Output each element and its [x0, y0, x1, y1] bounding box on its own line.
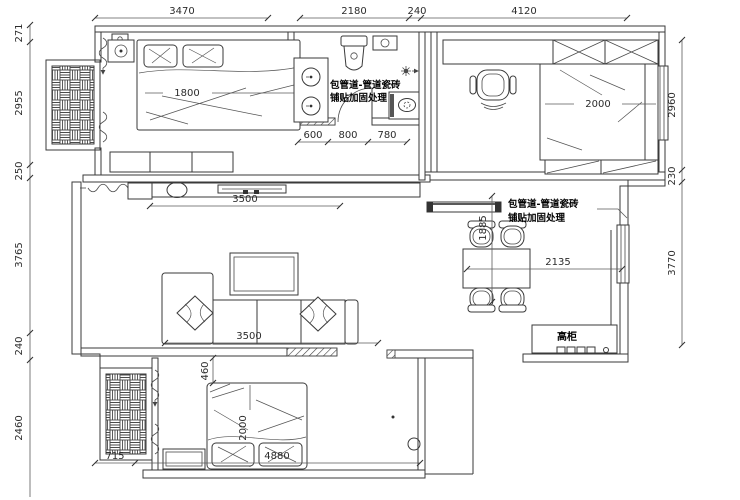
bath-pipe-note-line2: 铺贴加固处理 [330, 92, 388, 104]
dim-bottom-2: 4880 [264, 451, 289, 462]
dim-bath-1: 600 [303, 130, 322, 141]
toilet-icon [341, 36, 367, 70]
floor-plan-svg: 1800 [0, 0, 740, 500]
wall-living-bottom-hatch [287, 348, 337, 356]
dining-chair-icon [499, 221, 526, 247]
side-table [128, 183, 152, 199]
dining-chair-icon [468, 288, 495, 312]
dining-width-label: 2135 [545, 257, 570, 268]
master-bed: 1800 [137, 40, 300, 130]
kitchen-pipe-note-line1: 包管道-管道瓷砖 [507, 198, 579, 210]
wall-kitchen-bottom [523, 354, 628, 362]
dim-left-1: 271 [14, 23, 25, 42]
washing-machine-icon [389, 92, 419, 119]
dim-top-3: 240 [407, 6, 426, 17]
tv-icon [218, 185, 286, 194]
dim-left-3: 250 [14, 161, 25, 180]
master-low-cabinet [110, 152, 233, 172]
bed2: 2000 [207, 383, 307, 469]
wall-shaft-right [431, 32, 437, 172]
window-kitchen-right [617, 225, 629, 283]
master-bed-width-label: 1800 [174, 88, 199, 99]
pillow-icon [212, 443, 254, 466]
wall-right-step [628, 180, 665, 186]
study-dresser [545, 160, 658, 174]
wall-bed2-bottom [143, 470, 425, 478]
wall-corridor [387, 350, 473, 358]
curtain-icon [88, 184, 128, 192]
dining-area: 包管道-管道瓷砖 铺贴加固处理 [427, 198, 627, 312]
balcony2-weave-floor [106, 374, 146, 454]
bath-pipe-note-line1: 包管道-管道瓷砖 [329, 79, 401, 91]
dim-top-1: 3470 [169, 6, 194, 17]
wall-living-top [83, 175, 430, 182]
wall-cabinet-icon [373, 36, 397, 50]
balcony1-weave-floor [52, 66, 94, 144]
dimension-bed2-clearance: 460 [200, 355, 216, 386]
office-chair-icon [470, 70, 516, 110]
dim-right-1: 2960 [667, 92, 678, 117]
coffee-table [230, 253, 298, 295]
pillow-icon [144, 45, 177, 67]
dimension-left: 271 2955 250 3765 240 2460 [14, 22, 33, 497]
wall-shaft-left [419, 32, 425, 180]
master-bedroom: 1800 [99, 34, 300, 172]
bed2-clearance-label: 460 [200, 361, 211, 380]
dim-top-4: 4120 [511, 6, 536, 17]
wardrobe-icon [553, 40, 658, 64]
kitchen: 高柜 [532, 230, 617, 354]
wall-living-bottom [81, 348, 287, 356]
study-bed: 2000 [540, 64, 658, 160]
dim-bath-2: 800 [338, 130, 357, 141]
pillow-icon [183, 45, 223, 67]
wall-bed2-right [418, 358, 425, 474]
dim-left-4: 3765 [14, 242, 25, 267]
kitchen-pipe-note-line2: 铺贴加固处理 [508, 212, 566, 224]
dining-depth-label: 1885 [478, 215, 489, 240]
dim-top-2: 2180 [341, 6, 366, 17]
study-bed-width-label: 2000 [585, 99, 610, 110]
wall-bed2-left [152, 358, 158, 470]
sofa-width-label: 3500 [236, 331, 261, 342]
dining-chair-icon [499, 288, 526, 312]
wall-top [95, 26, 665, 32]
study-cabinet [443, 40, 553, 64]
study-room: 2000 [443, 40, 658, 174]
dim-left-2: 2955 [14, 90, 25, 115]
dim-right-2: 230 [667, 166, 678, 185]
dimension-top: 3470 2180 240 4120 [92, 6, 630, 21]
nightstand-lamp-icon [108, 40, 134, 62]
dimension-bathroom: 600 800 780 [295, 130, 410, 145]
wall-corridor-hatch [387, 350, 395, 358]
tv-wall-width-label: 3500 [232, 194, 257, 205]
dim-left-6: 2460 [14, 415, 25, 440]
tall-cabinet-label: 高柜 [557, 330, 577, 343]
entry-bench [427, 202, 501, 212]
bathroom: 包管道-管道瓷砖 铺贴加固处理 [294, 36, 419, 122]
wall-living-left [72, 182, 81, 354]
dim-bath-3: 780 [377, 130, 396, 141]
floor-plan-canvas: 1800 [0, 0, 740, 500]
nightstand [163, 449, 205, 469]
wall-master-left-upper [95, 32, 101, 62]
dimension-right: 2960 230 3770 [667, 37, 685, 348]
dim-right-3: 3770 [667, 250, 678, 275]
small-dot [392, 416, 395, 419]
dim-left-5: 240 [14, 336, 25, 355]
dining-table [463, 249, 530, 288]
dim-bottom-1: 715 [105, 451, 124, 462]
shower-head-icon [401, 66, 418, 76]
